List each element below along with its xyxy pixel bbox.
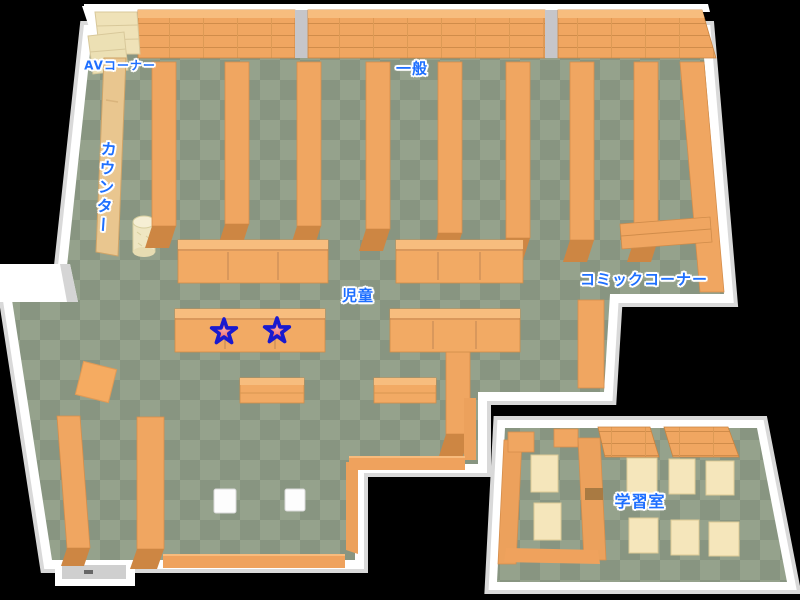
bookshelf	[570, 62, 594, 240]
wall-shelf	[504, 548, 600, 564]
star-marker-2[interactable]	[259, 313, 295, 349]
bookshelf	[464, 398, 476, 460]
bookshelf	[508, 432, 534, 452]
wall-pillar	[545, 10, 558, 58]
bookshelf	[366, 62, 390, 229]
study-desk	[671, 520, 699, 555]
bench	[240, 378, 304, 403]
white-table	[214, 489, 236, 513]
area-label-comic-corner: コミックコーナー	[580, 269, 708, 290]
bookshelf	[297, 62, 321, 226]
study-desk	[534, 503, 561, 540]
bookshelf	[506, 62, 530, 238]
bookshelf	[634, 62, 658, 240]
bookshelf	[438, 62, 462, 233]
library-map: AVコーナー 一般 カウンター コミックコーナー 児童 学習室	[0, 0, 800, 600]
area-label-children: 児童	[342, 285, 374, 306]
area-label-av-corner: AVコーナー	[84, 57, 156, 74]
star-icon	[259, 313, 295, 349]
white-table	[285, 489, 305, 511]
study-desk	[706, 461, 734, 495]
bookshelf	[554, 429, 578, 447]
top-wall-shelves	[138, 10, 716, 58]
study-desk	[629, 518, 658, 553]
low-shelf	[390, 309, 520, 352]
bench	[374, 378, 436, 403]
study-desk	[669, 459, 695, 494]
bookshelf	[152, 62, 176, 226]
wall-shelf	[163, 554, 345, 568]
study-desk	[709, 522, 739, 556]
bookshelf	[137, 417, 164, 549]
low-shelf	[178, 240, 328, 283]
floor-mat	[75, 361, 116, 402]
bookshelf	[598, 427, 659, 457]
bookshelf	[664, 427, 739, 457]
wall-shelf	[349, 456, 465, 470]
bookshelf	[578, 300, 604, 388]
map-graphics	[0, 0, 800, 600]
low-shelf	[175, 309, 325, 352]
area-label-general: 一般	[396, 58, 428, 79]
star-icon	[206, 314, 242, 350]
low-shelf	[396, 240, 523, 283]
wall-shelf	[346, 462, 358, 554]
star-marker-1[interactable]	[206, 314, 242, 350]
study-desk	[531, 455, 558, 492]
area-label-study-room: 学習室	[614, 488, 665, 512]
wall-pillar	[295, 10, 308, 58]
bookshelf	[225, 62, 249, 224]
